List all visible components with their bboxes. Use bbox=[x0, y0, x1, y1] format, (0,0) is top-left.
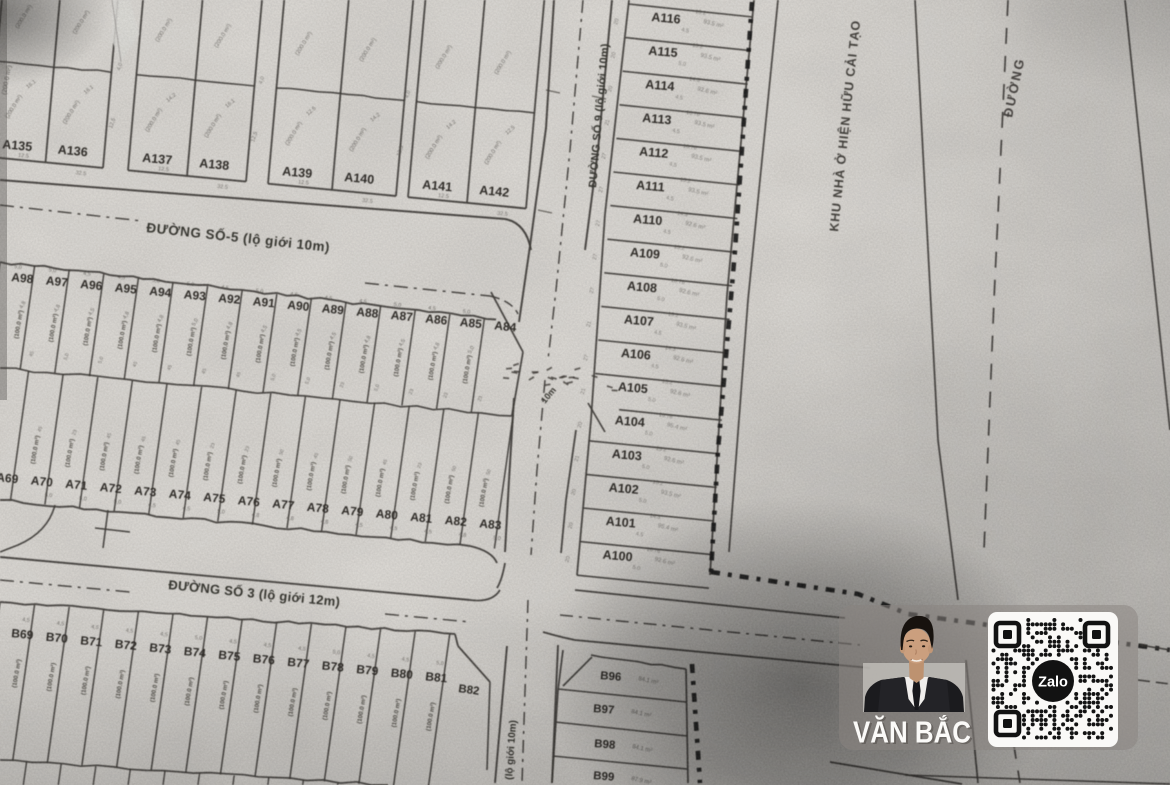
svg-text:VĂN BẮC: VĂN BẮC bbox=[853, 714, 971, 750]
svg-text:Zalo: Zalo bbox=[1038, 675, 1068, 691]
